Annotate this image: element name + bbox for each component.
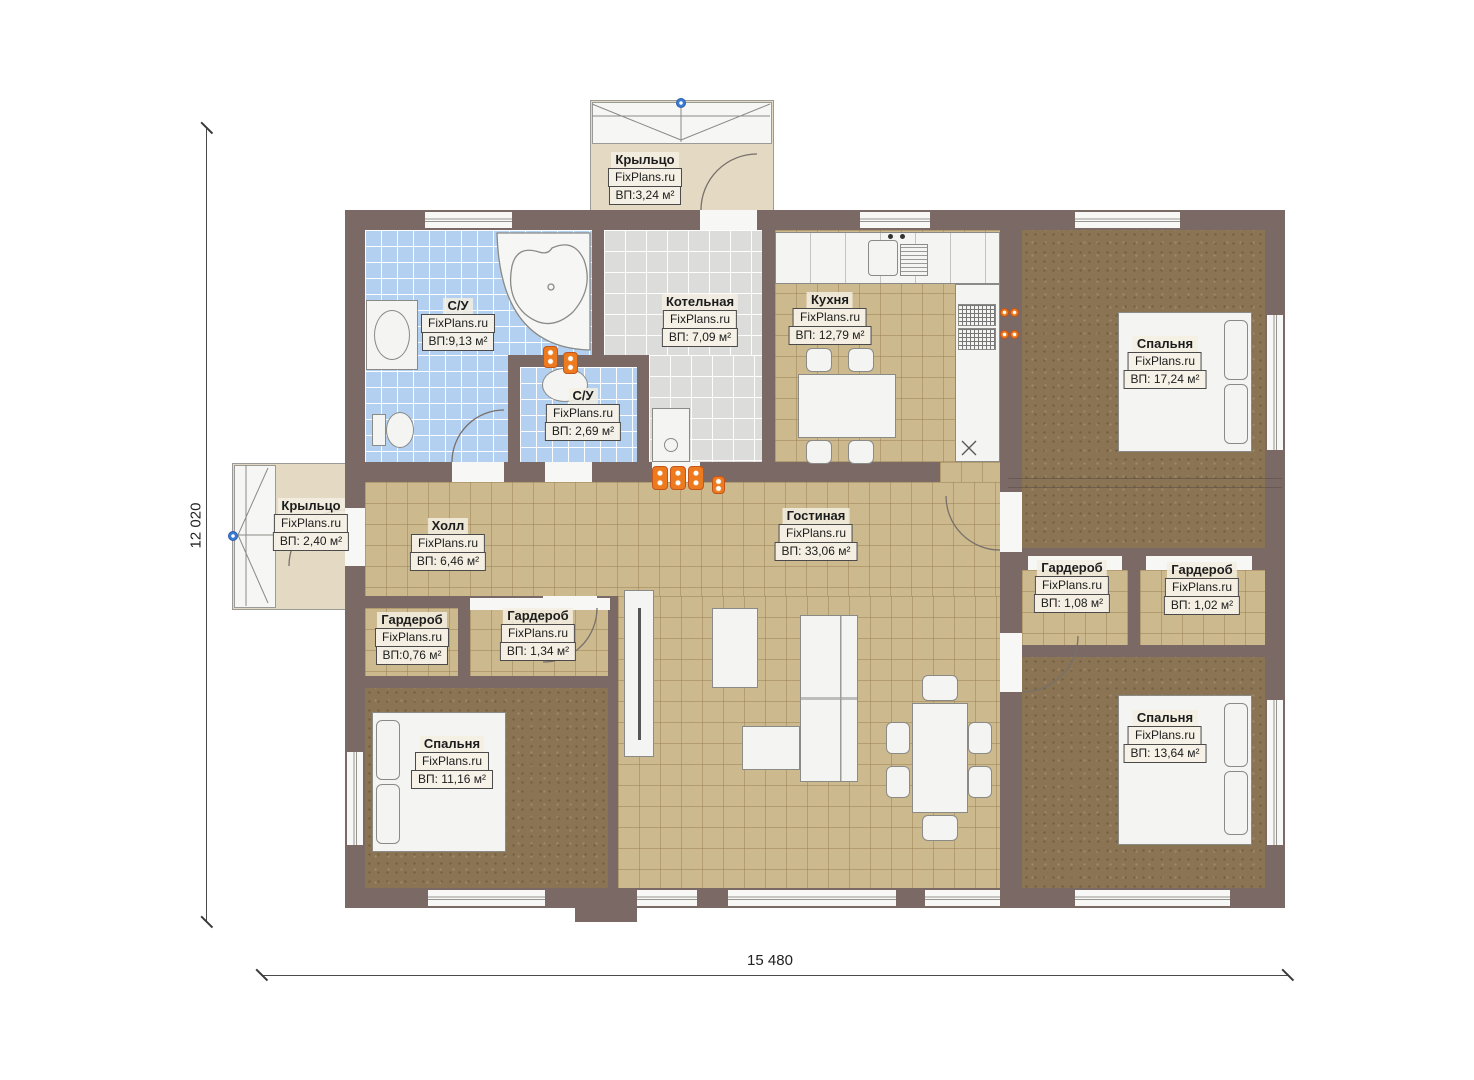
chair (922, 815, 958, 841)
room-area: ВП:3,24 м² (609, 186, 682, 205)
room-label-bathroom-small: С/У FixPlans.ru ВП: 2,69 м² (545, 388, 621, 441)
chair (886, 766, 910, 798)
stove-knob-icon (1010, 330, 1019, 339)
power-outlet-icon (688, 466, 704, 490)
opening-kitchen-living (940, 462, 1000, 482)
window (637, 890, 697, 906)
room-name: Котельная (662, 294, 738, 310)
door-opening-porch-top (700, 210, 757, 230)
toilet-bowl (386, 412, 414, 448)
bathroom-large-floor-lower (365, 355, 508, 462)
pillow (376, 720, 400, 780)
room-name: Гардероб (377, 612, 446, 628)
room-name: Гардероб (1037, 560, 1106, 576)
water-heater-dial (664, 438, 678, 452)
room-name: Гардероб (1167, 562, 1236, 578)
room-name: С/У (568, 388, 597, 404)
window (925, 890, 1000, 906)
faucet-icon (888, 234, 893, 239)
door-opening-bedroom-bottom-right (1000, 633, 1022, 692)
room-name: С/У (443, 298, 472, 314)
watermark-label: FixPlans.ru (415, 752, 489, 771)
watermark-label: FixPlans.ru (1035, 576, 1109, 595)
room-label-living-room: Гостиная FixPlans.ru ВП: 33,06 м² (775, 508, 858, 561)
pillow (1224, 703, 1248, 767)
room-name: Спальня (1133, 710, 1197, 726)
stove-knob-icon (1000, 308, 1009, 317)
door-opening-bathroom-small (545, 462, 592, 482)
room-label-wardrobe-right-2: Гардероб FixPlans.ru ВП: 1,02 м² (1164, 562, 1240, 615)
toilet-tank (372, 414, 386, 446)
pillow (1224, 771, 1248, 835)
door-opening-bedroom-top-right (1000, 492, 1022, 552)
chair (922, 675, 958, 701)
entry-marker-icon[interactable] (228, 531, 238, 541)
window (1075, 212, 1180, 228)
room-area: ВП: 11,16 м² (411, 770, 493, 789)
room-area: ВП: 1,34 м² (500, 642, 576, 661)
room-name: Спальня (1133, 336, 1197, 352)
dimension-line-horizontal (262, 975, 1288, 976)
sofa (800, 615, 858, 782)
watermark-label: FixPlans.ru (793, 308, 867, 327)
watermark-label: FixPlans.ru (411, 534, 485, 553)
room-name: Холл (428, 518, 469, 534)
stove-knob-icon (1010, 308, 1019, 317)
room-name: Спальня (420, 736, 484, 752)
room-label-bedroom-bottom-right: Спальня FixPlans.ru ВП: 13,64 м² (1124, 710, 1207, 763)
kitchen-sink (868, 240, 898, 276)
room-label-porch-top: Крыльцо FixPlans.ru ВП:3,24 м² (608, 152, 682, 205)
window (728, 890, 896, 906)
stove-burner-icon (958, 328, 996, 350)
dining-table (912, 703, 968, 813)
room-label-bedroom-bottom-left: Спальня FixPlans.ru ВП: 11,16 м² (411, 736, 493, 789)
entry-marker-icon[interactable] (676, 98, 686, 108)
chair (968, 722, 992, 754)
room-area: ВП:9,13 м² (422, 332, 495, 351)
chair (848, 440, 874, 464)
faucet-icon (900, 234, 905, 239)
window (428, 890, 545, 906)
tv-icon (638, 608, 641, 740)
room-area: ВП:0,76 м² (376, 646, 449, 665)
watermark-label: FixPlans.ru (546, 404, 620, 423)
sofa-chaise (742, 726, 800, 770)
room-area: ВП: 6,46 м² (410, 552, 486, 571)
room-name: Крыльцо (277, 498, 344, 514)
watermark-label: FixPlans.ru (421, 314, 495, 333)
power-outlet-icon (543, 346, 558, 368)
kitchen-table (798, 374, 896, 438)
room-area: ВП: 33,06 м² (775, 542, 858, 561)
chair (968, 766, 992, 798)
watermark-label: FixPlans.ru (608, 168, 682, 187)
pillow (376, 784, 400, 844)
watermark-label: FixPlans.ru (1165, 578, 1239, 597)
watermark-label: FixPlans.ru (501, 624, 575, 643)
room-area: ВП: 17,24 м² (1124, 370, 1207, 389)
ceiling-beam-line (1008, 487, 1282, 488)
room-name: Крыльцо (611, 152, 678, 168)
watermark-label: FixPlans.ru (274, 514, 348, 533)
room-label-wardrobe-left-1: Гардероб FixPlans.ru ВП:0,76 м² (375, 612, 449, 665)
pillow (1224, 320, 1248, 380)
room-label-boiler-room: Котельная FixPlans.ru ВП: 7,09 м² (662, 294, 738, 347)
chair (886, 722, 910, 754)
chair (806, 348, 832, 372)
room-label-hall: Холл FixPlans.ru ВП: 6,46 м² (410, 518, 486, 571)
pillow (1224, 384, 1248, 444)
room-label-bathroom-large: С/У FixPlans.ru ВП:9,13 м² (421, 298, 495, 351)
room-label-wardrobe-left-2: Гардероб FixPlans.ru ВП: 1,34 м² (500, 608, 576, 661)
room-label-kitchen: Кухня FixPlans.ru ВП: 12,79 м² (789, 292, 872, 345)
dimension-line-vertical (206, 128, 207, 922)
room-label-bedroom-top-right: Спальня FixPlans.ru ВП: 17,24 м² (1124, 336, 1207, 389)
window (860, 212, 930, 228)
room-label-wardrobe-right-1: Гардероб FixPlans.ru ВП: 1,08 м² (1034, 560, 1110, 613)
bottom-step (575, 908, 637, 922)
dimension-label-horizontal: 15 480 (690, 952, 850, 969)
water-heater (652, 408, 690, 462)
chair (806, 440, 832, 464)
room-area: ВП: 2,69 м² (545, 422, 621, 441)
door-opening-bathroom-large (452, 462, 504, 482)
kitchen-drainboard (900, 244, 928, 276)
power-outlet-icon (670, 466, 686, 490)
window (347, 752, 363, 845)
room-name: Кухня (807, 292, 853, 308)
sink-basin (374, 310, 410, 360)
stove-knob-icon (1000, 330, 1009, 339)
watermark-label: FixPlans.ru (375, 628, 449, 647)
power-outlet-icon (712, 476, 725, 494)
watermark-label: FixPlans.ru (1128, 352, 1202, 371)
watermark-label: FixPlans.ru (1128, 726, 1202, 745)
porch-left-steps (234, 465, 276, 608)
watermark-label: FixPlans.ru (779, 524, 853, 543)
floor-plan-canvas: Крыльцо FixPlans.ru ВП:3,24 м² С/У FixPl… (0, 0, 1474, 1080)
window (1267, 315, 1283, 450)
chair (848, 348, 874, 372)
room-area: ВП: 7,09 м² (662, 328, 738, 347)
power-outlet-icon (563, 352, 578, 374)
room-area: ВП: 12,79 м² (789, 326, 872, 345)
coffee-table (712, 608, 758, 688)
window (1267, 700, 1283, 845)
room-area: ВП: 1,02 м² (1164, 596, 1240, 615)
dimension-tick (201, 122, 213, 134)
ceiling-beam-line (1008, 478, 1282, 479)
stove-burner-icon (958, 304, 996, 326)
room-name: Гостиная (783, 508, 850, 524)
room-area: ВП: 1,08 м² (1034, 594, 1110, 613)
window (425, 212, 512, 228)
power-outlet-icon (652, 466, 668, 490)
room-area: ВП: 2,40 м² (273, 532, 349, 551)
window (1075, 890, 1230, 906)
room-name: Гардероб (503, 608, 572, 624)
dimension-label-vertical: 12 020 (188, 486, 205, 566)
room-label-porch-left: Крыльцо FixPlans.ru ВП: 2,40 м² (273, 498, 349, 551)
watermark-label: FixPlans.ru (663, 310, 737, 329)
dimension-tick (201, 916, 213, 928)
porch-top-steps (592, 102, 772, 144)
room-area: ВП: 13,64 м² (1124, 744, 1207, 763)
